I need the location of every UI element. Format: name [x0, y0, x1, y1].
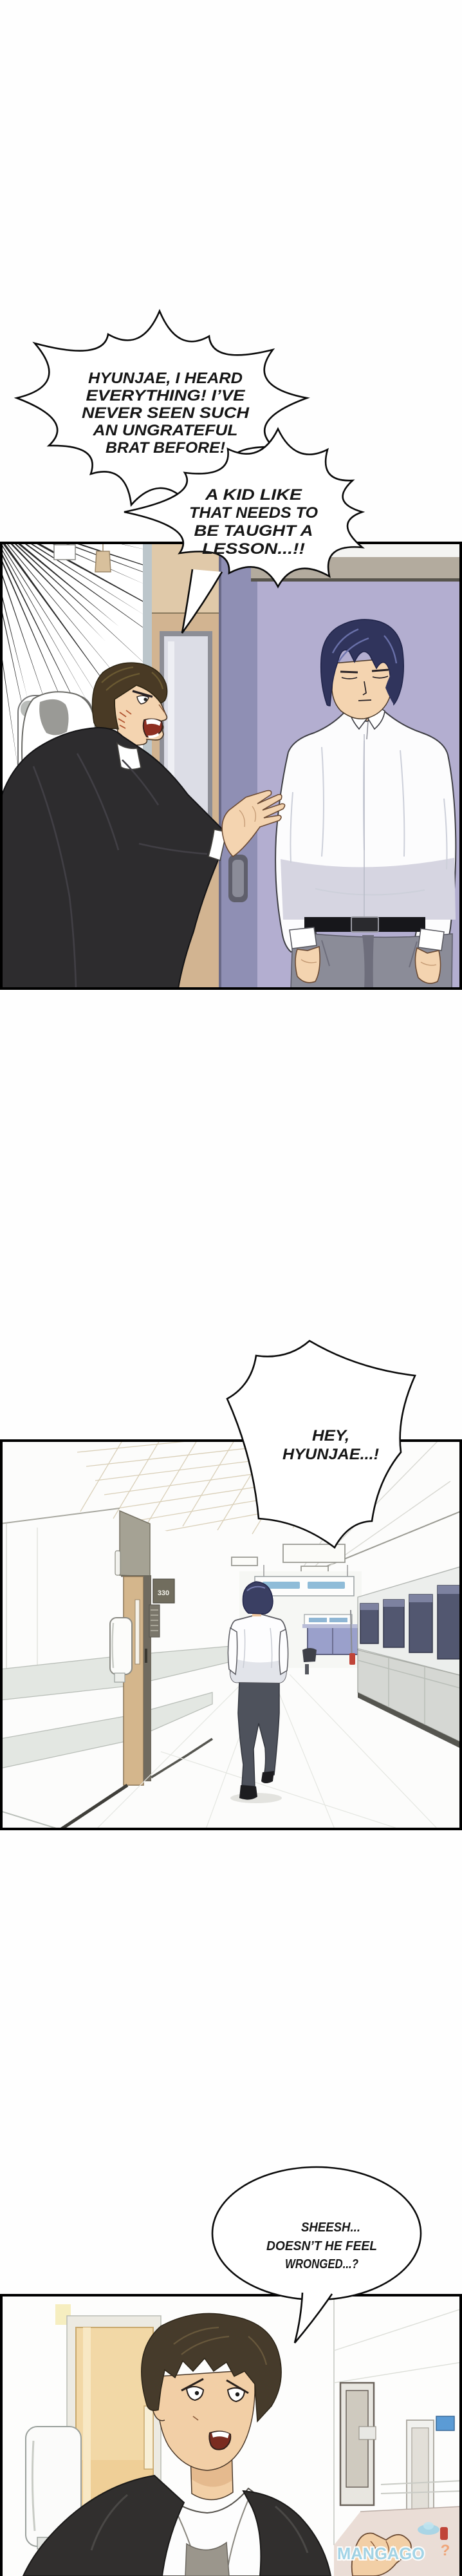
svg-text:HEY,: HEY,	[312, 1427, 349, 1444]
svg-text:AN UNGRATEFUL: AN UNGRATEFUL	[92, 422, 237, 439]
svg-text:HYUNJAE, I HEARD: HYUNJAE, I HEARD	[88, 370, 243, 387]
svg-text:SHEESH...: SHEESH...	[301, 2221, 360, 2235]
svg-text:BRAT BEFORE!: BRAT BEFORE!	[106, 439, 225, 457]
svg-text:?: ?	[441, 2542, 450, 2559]
svg-text:DOESN’T HE FEEL: DOESN’T HE FEEL	[266, 2239, 377, 2253]
svg-text:THAT NEEDS TO: THAT NEEDS TO	[189, 504, 318, 522]
svg-text:BE TAUGHT A: BE TAUGHT A	[194, 522, 313, 540]
svg-text:330: 330	[158, 1589, 169, 1597]
svg-text:MANGAGO: MANGAGO	[337, 2544, 425, 2563]
svg-text:NEVER SEEN SUCH: NEVER SEEN SUCH	[82, 404, 250, 422]
svg-text:A KID LIKE: A KID LIKE	[205, 486, 302, 504]
svg-text:WRONGED...?: WRONGED...?	[285, 2257, 358, 2271]
svg-text:EVERYTHING! I’VE: EVERYTHING! I’VE	[86, 387, 246, 404]
svg-text:HYUNJAE...!: HYUNJAE...!	[282, 1446, 379, 1463]
svg-text:LESSON...!!: LESSON...!!	[202, 540, 305, 558]
